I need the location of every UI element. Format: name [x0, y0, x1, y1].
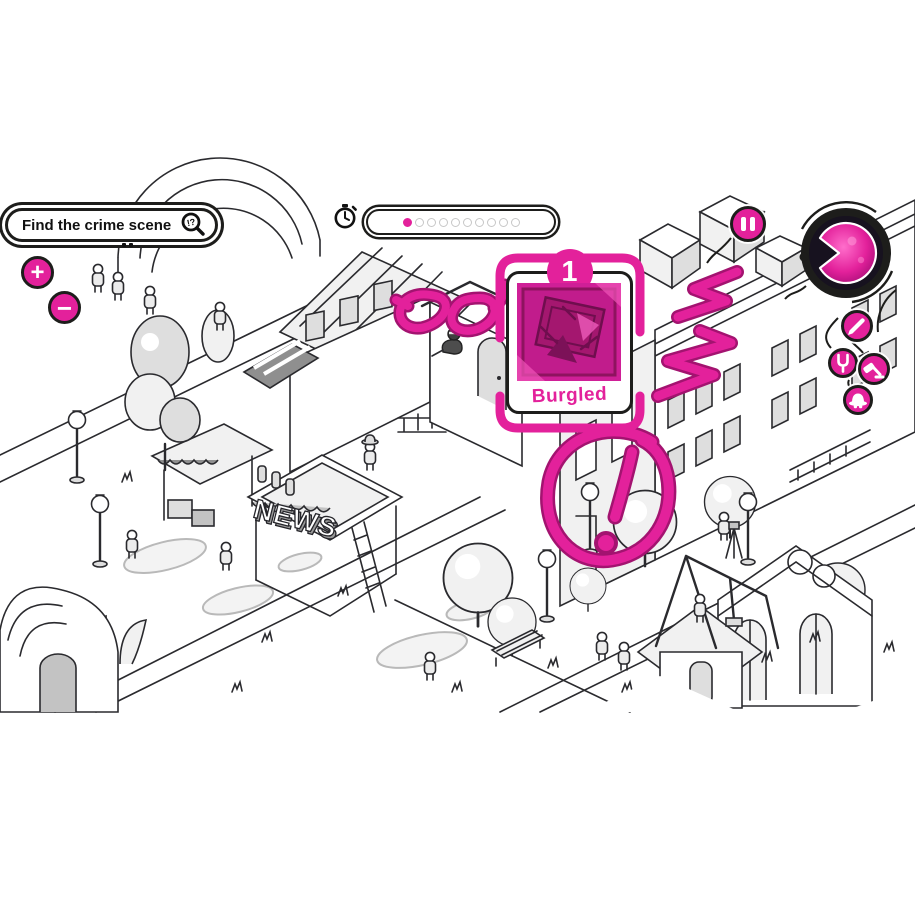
- progress-dot: [463, 218, 472, 227]
- progress-dot: [511, 218, 520, 227]
- pause-button[interactable]: [730, 206, 766, 242]
- progress-dots: [366, 209, 556, 235]
- pencil-tool-button[interactable]: [841, 310, 873, 342]
- crime-card[interactable]: 1 Burgled: [506, 271, 633, 414]
- city-scene[interactable]: NEWS NEWS: [0, 0, 915, 900]
- progress-dot: [499, 218, 508, 227]
- progress-dot: [439, 218, 448, 227]
- detective-hat-tool-button[interactable]: [843, 385, 873, 415]
- objective-label: Find the crime scene: [22, 217, 171, 234]
- crime-card-label: Burgled: [509, 383, 631, 409]
- pause-icon: [741, 217, 746, 231]
- detective-hat-icon: [848, 390, 868, 410]
- scanner-gadget[interactable]: [794, 201, 898, 305]
- zoom-out-button[interactable]: −: [48, 291, 81, 324]
- gavel-tool-button[interactable]: [858, 353, 890, 385]
- stopwatch-icon: [329, 201, 361, 233]
- tuning-fork-tool-button[interactable]: [828, 348, 858, 378]
- magnifier-icon: !?: [179, 211, 207, 239]
- progress-dot: [403, 218, 412, 227]
- progress-dot: [451, 218, 460, 227]
- objective-tail-dots: [122, 243, 133, 247]
- progress-dot: [427, 218, 436, 227]
- gavel-icon: [863, 358, 885, 380]
- progress-dot: [415, 218, 424, 227]
- progress-dot: [475, 218, 484, 227]
- crime-card-image: [517, 283, 621, 381]
- game-screen: NEWS NEWS: [0, 0, 915, 900]
- objective-banner: Find the crime scene !?: [5, 208, 218, 242]
- tuning-fork-icon: [833, 353, 853, 373]
- zoom-in-button[interactable]: +: [21, 256, 54, 289]
- pencil-icon: [846, 315, 868, 337]
- progress-dot: [487, 218, 496, 227]
